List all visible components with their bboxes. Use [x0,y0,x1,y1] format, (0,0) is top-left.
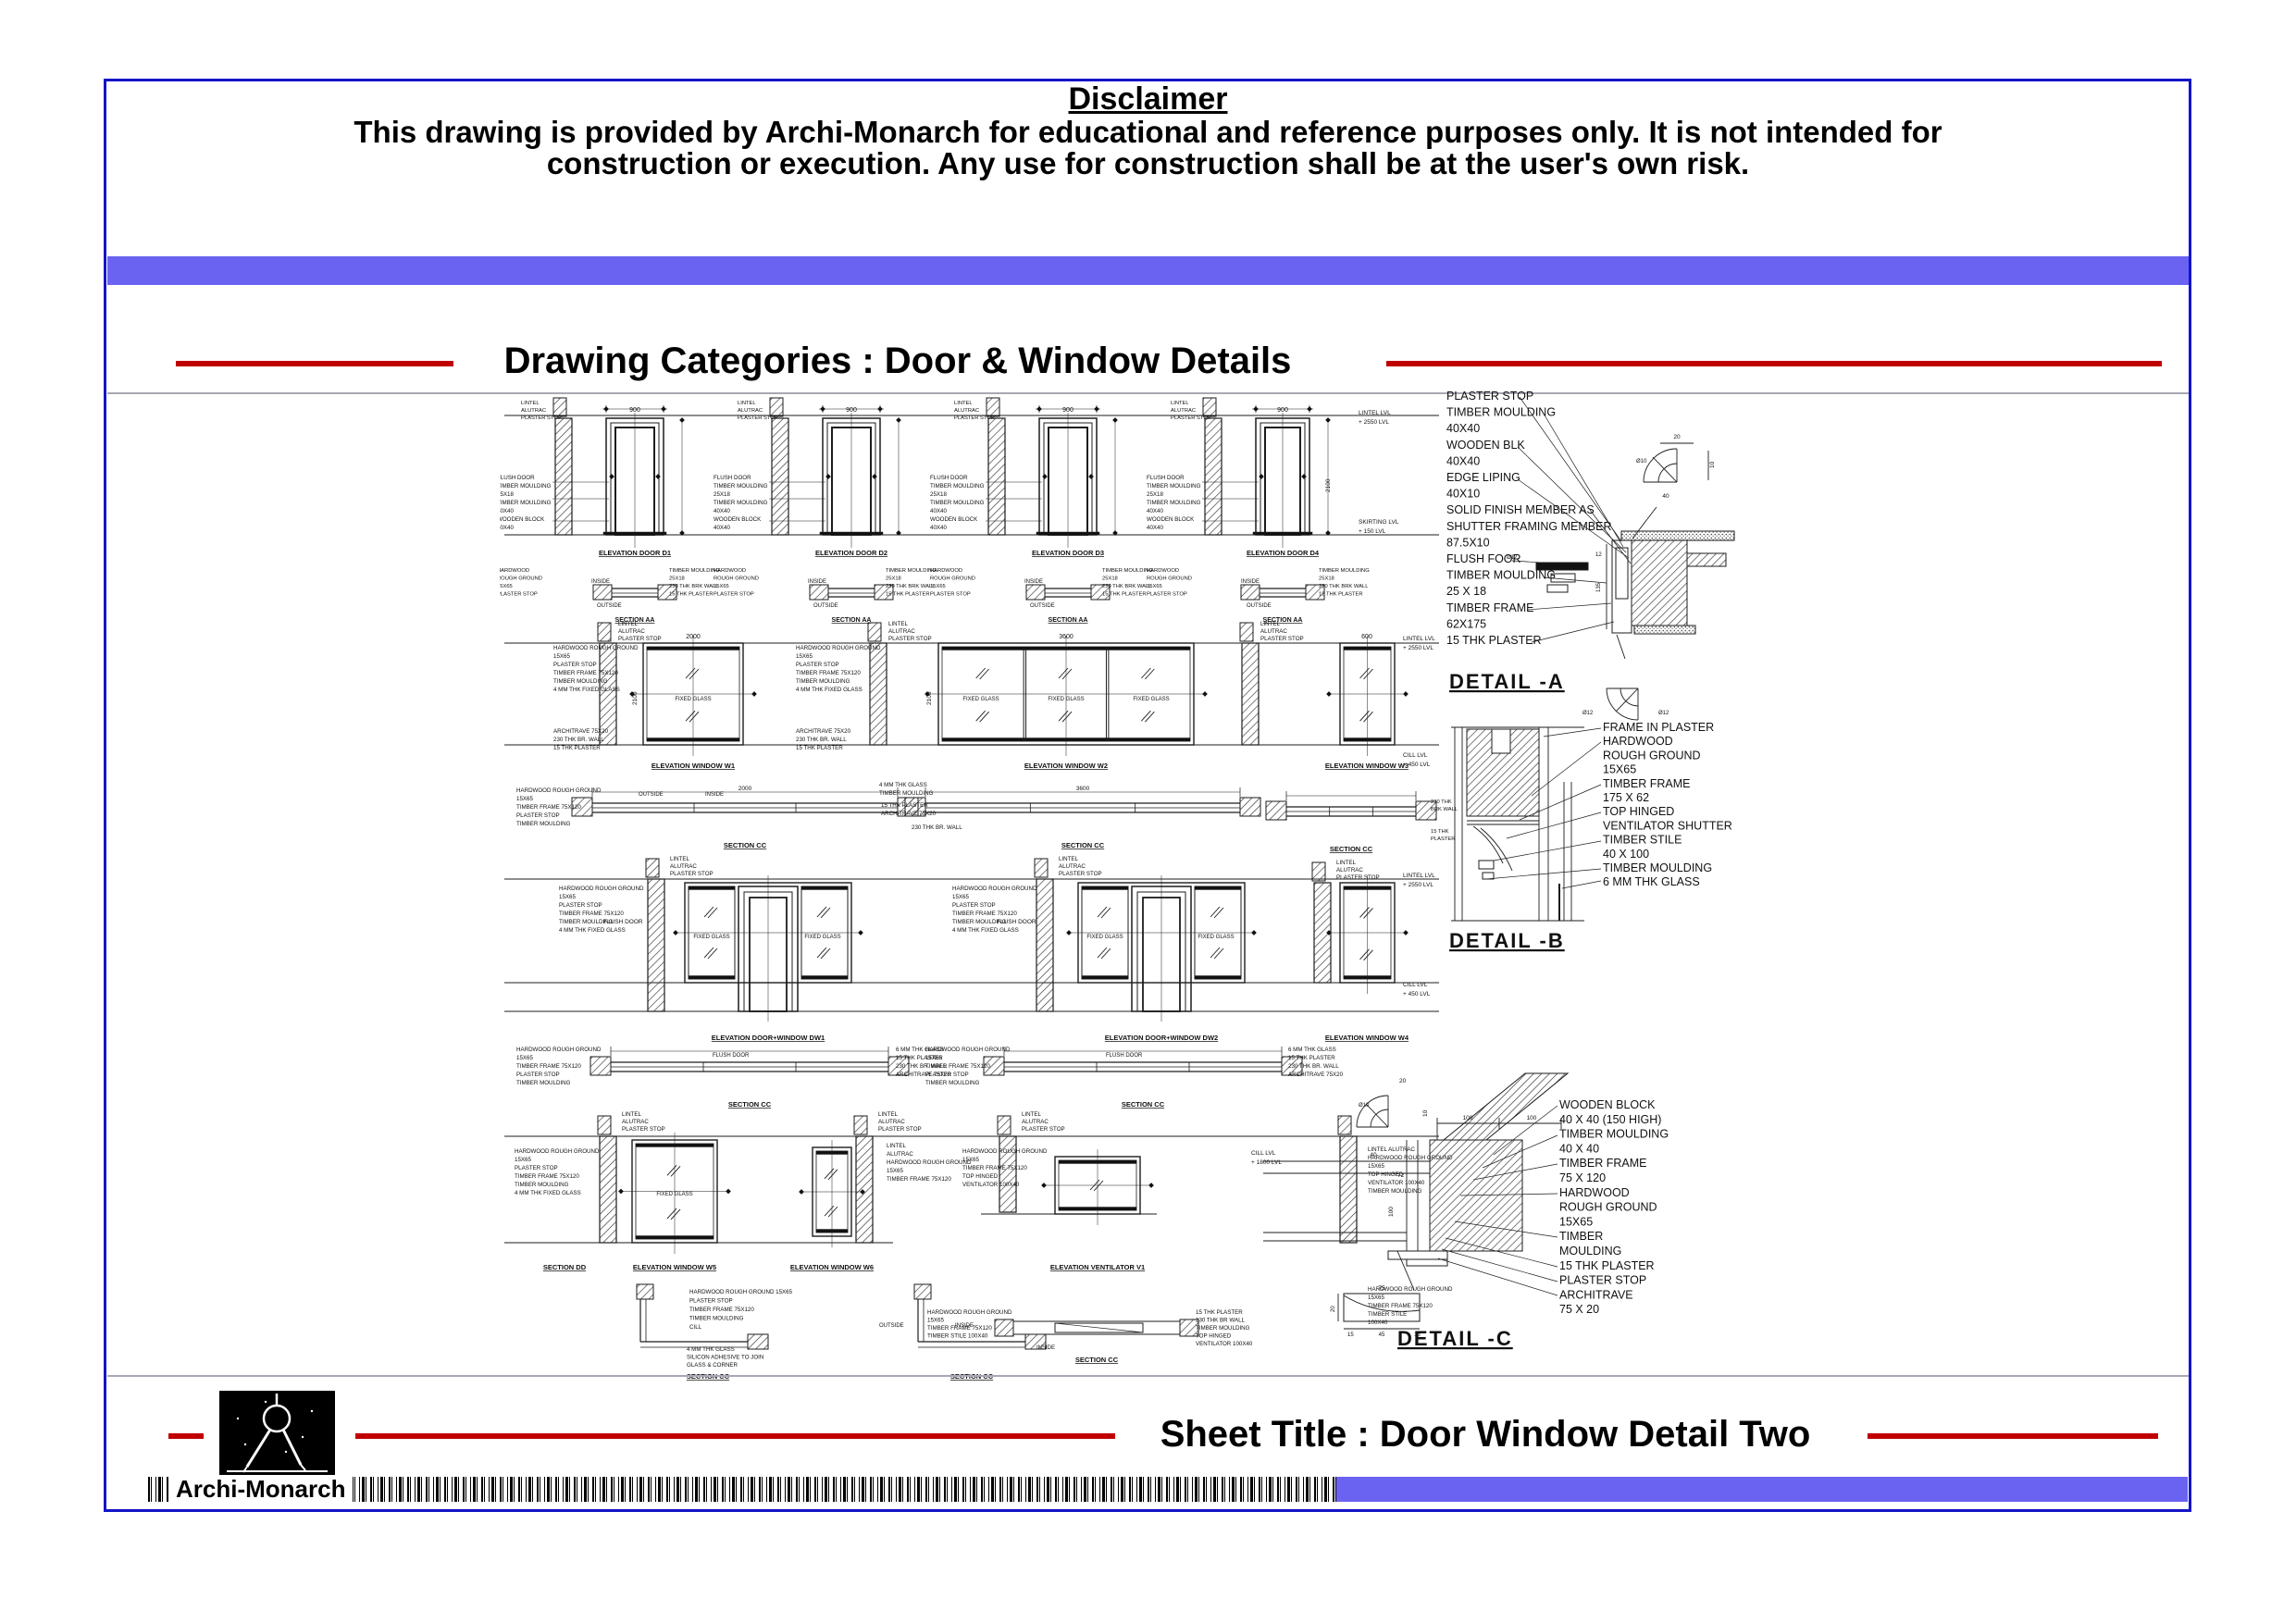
svg-text:SKIRTING LVL: SKIRTING LVL [1359,519,1399,526]
svg-text:OUTSIDE: OUTSIDE [1030,603,1055,609]
svg-text:ALUTRAC: ALUTRAC [622,1119,649,1125]
svg-text:ELEVATION WINDOW W6: ELEVATION WINDOW W6 [790,1263,874,1271]
svg-text:15X65: 15X65 [516,1055,533,1061]
svg-text:25X18: 25X18 [500,491,514,498]
svg-text:LINTEL LVL: LINTEL LVL [1359,410,1391,416]
svg-text:VENTILATOR SHUTTER: VENTILATOR SHUTTER [1603,819,1732,832]
svg-text:TIMBER MOULDING: TIMBER MOULDING [930,483,985,489]
svg-text:40X40: 40X40 [930,525,947,531]
svg-text:+ 2550 LVL: + 2550 LVL [1359,419,1389,426]
svg-text:LINTEL: LINTEL [670,856,690,862]
svg-text:TIMBER FRAME 75X120: TIMBER FRAME 75X120 [516,804,581,811]
svg-text:TIMBER MOULDING: TIMBER MOULDING [1147,500,1201,506]
svg-text:HARDWOOD: HARDWOOD [1603,735,1673,748]
svg-text:15X65: 15X65 [1603,763,1636,776]
svg-text:75 X 20: 75 X 20 [1559,1303,1599,1316]
svg-text:ALUTRAC: ALUTRAC [1260,628,1287,635]
svg-text:25X18: 25X18 [930,491,947,498]
svg-text:40 X 100: 40 X 100 [1603,848,1649,861]
svg-text:4 MM THK FIXED GLASS: 4 MM THK FIXED GLASS [796,687,863,693]
svg-text:LINTEL: LINTEL [618,621,639,627]
svg-text:FLUSH DOOR: FLUSH DOOR [713,1053,750,1059]
svg-text:SHUTTER FRAMING MEMBER: SHUTTER FRAMING MEMBER [1446,520,1611,533]
svg-text:TIMBER STILE 100X40: TIMBER STILE 100X40 [927,1333,988,1340]
svg-text:HARDWOOD ROUGH GROUND: HARDWOOD ROUGH GROUND [516,787,602,794]
svg-text:DETAIL -A: DETAIL -A [1449,670,1565,693]
svg-text:PLASTER STOP: PLASTER STOP [1260,636,1304,642]
svg-text:ROUGH GROUND: ROUGH GROUND [930,576,975,582]
svg-text:TIMBER MOULDING: TIMBER MOULDING [1102,568,1153,574]
svg-text:TIMBER MOULDING: TIMBER MOULDING [1603,861,1712,874]
svg-text:100: 100 [1388,1207,1395,1217]
svg-text:PLASTER STOP: PLASTER STOP [1171,415,1211,421]
svg-text:PLASTER STOP: PLASTER STOP [925,1072,969,1078]
svg-text:LINTEL: LINTEL [1260,621,1281,627]
svg-text:CILL LVL: CILL LVL [1403,752,1428,759]
svg-text:HARDWOOD ROUGH GROUND: HARDWOOD ROUGH GROUND [925,1047,1011,1053]
svg-text:15X65: 15X65 [553,653,570,660]
svg-text:15X65: 15X65 [515,1157,531,1163]
svg-text:WOODEN BLOCK: WOODEN BLOCK [714,516,762,523]
drawing-sheet-page: Disclaimer This drawing is provided by A… [0,0,2296,1623]
svg-text:MOULDING: MOULDING [1559,1245,1621,1258]
svg-text:FLUSH DOOR: FLUSH DOOR [1147,475,1185,481]
svg-text:TIMBER MOULDING: TIMBER MOULDING [1559,1128,1669,1141]
svg-text:LINTEL: LINTEL [622,1111,642,1118]
svg-text:FIXED GLASS: FIXED GLASS [1133,697,1169,702]
svg-text:40 X 40 (150 HIGH): 40 X 40 (150 HIGH) [1559,1113,1661,1126]
svg-text:600: 600 [1361,634,1372,640]
svg-text:15X65: 15X65 [930,584,946,589]
svg-text:2000: 2000 [686,634,701,640]
svg-text:TIMBER STILE: TIMBER STILE [1368,1311,1407,1318]
svg-text:FLUSH DOOR: FLUSH DOOR [714,475,751,481]
svg-text:LINTEL: LINTEL [738,401,756,406]
disclaimer-line-2: construction or execution. Any use for c… [0,146,2296,181]
svg-text:2100: 2100 [1325,478,1332,492]
svg-text:+ 450 LVL: + 450 LVL [1403,762,1431,768]
svg-text:VENTILATOR 100X40: VENTILATOR 100X40 [1368,1180,1425,1186]
svg-text:SILICON ADHESIVE TO JOIN: SILICON ADHESIVE TO JOIN [687,1355,763,1361]
svg-text:25X18: 25X18 [1147,491,1163,498]
svg-text:25X18: 25X18 [1102,576,1118,582]
svg-text:HARDWOOD ROUGH GROUND: HARDWOOD ROUGH GROUND [553,645,639,651]
svg-text:230 THK BR. WALL: 230 THK BR. WALL [1288,1063,1339,1070]
svg-text:TIMBER MOULDING: TIMBER MOULDING [689,1316,744,1322]
svg-text:175 X 62: 175 X 62 [1603,791,1649,804]
svg-text:40X10: 40X10 [1446,488,1480,501]
svg-text:FIXED GLASS: FIXED GLASS [1086,935,1123,940]
svg-text:TIMBER MOULDING: TIMBER MOULDING [1319,568,1370,574]
svg-text:900: 900 [846,407,857,414]
svg-text:PLASTER STOP: PLASTER STOP [670,871,714,877]
svg-text:ROUGH GROUND: ROUGH GROUND [1147,576,1192,582]
svg-text:HARDWOOD ROUGH GROUND: HARDWOOD ROUGH GROUND [887,1159,972,1166]
svg-text:OUTSIDE: OUTSIDE [1247,603,1272,609]
svg-text:45: 45 [1379,1332,1385,1338]
svg-text:TIMBER FRAME: TIMBER FRAME [1446,601,1533,614]
svg-text:ALUTRAC: ALUTRAC [1022,1119,1049,1125]
svg-text:900: 900 [629,407,640,414]
svg-text:230 THK BR. WALL: 230 THK BR. WALL [796,737,847,743]
svg-text:OUTSIDE: OUTSIDE [639,792,664,798]
svg-text:2100: 2100 [926,691,933,705]
svg-text:ALUTRAC: ALUTRAC [618,628,645,635]
svg-text:TIMBER MOULDING: TIMBER MOULDING [1196,1325,1250,1332]
svg-text:FLUSH DOOR: FLUSH DOOR [930,475,968,481]
svg-text:TIMBER MOULDING: TIMBER MOULDING [879,790,934,797]
svg-text:4 MM THK FIXED GLASS: 4 MM THK FIXED GLASS [553,687,620,693]
svg-text:15 THK PLASTER: 15 THK PLASTER [1288,1055,1335,1061]
svg-text:FIXED GLASS: FIXED GLASS [1198,935,1234,940]
svg-text:75 X 120: 75 X 120 [1559,1171,1606,1184]
svg-text:TIMBER MOULDING: TIMBER MOULDING [553,678,608,685]
svg-text:PLASTER STOP: PLASTER STOP [878,1126,922,1133]
svg-text:15 THK PLASTER: 15 THK PLASTER [1196,1309,1243,1316]
svg-text:ALUTRAC: ALUTRAC [521,408,546,414]
svg-text:15 THK PLASTER: 15 THK PLASTER [553,745,601,751]
svg-text:VENTILATOR 100X40: VENTILATOR 100X40 [1196,1341,1253,1347]
svg-text:SECTION CC: SECTION CC [728,1100,772,1109]
svg-text:6 MM THK GLASS: 6 MM THK GLASS [1288,1047,1336,1053]
svg-text:15X65: 15X65 [500,584,513,589]
svg-text:PLASTER STOP: PLASTER STOP [1022,1126,1065,1133]
compass-logo-icon [219,1391,335,1476]
svg-text:15 THK PLASTER: 15 THK PLASTER [1319,592,1363,598]
svg-text:TIMBER MOULDING: TIMBER MOULDING [1147,483,1201,489]
svg-text:TOP HINGED: TOP HINGED [1603,805,1674,818]
svg-text:LINTEL: LINTEL [878,1111,899,1118]
svg-text:ELEVATION DOOR D1: ELEVATION DOOR D1 [599,549,671,557]
svg-text:LINTEL: LINTEL [887,1143,907,1149]
svg-text:Ø10: Ø10 [1636,459,1647,465]
svg-text:900: 900 [1062,407,1074,414]
svg-text:TIMBER FRAME 75X120: TIMBER FRAME 75X120 [553,670,618,676]
svg-text:PLASTER STOP: PLASTER STOP [1059,871,1102,877]
svg-text:PLASTER STOP: PLASTER STOP [516,1072,560,1078]
svg-text:40X40: 40X40 [1147,525,1163,531]
svg-text:TIMBER MOULDING: TIMBER MOULDING [516,1080,571,1086]
svg-text:FRAME IN PLASTER: FRAME IN PLASTER [1603,721,1714,734]
svg-text:100X40: 100X40 [1368,1319,1388,1326]
svg-text:40X40: 40X40 [714,525,730,531]
svg-text:15X65: 15X65 [1368,1163,1384,1170]
svg-text:Ø12: Ø12 [1658,711,1669,716]
svg-text:ARCHITRAVE: ARCHITRAVE [1559,1288,1633,1301]
svg-text:HARDWOOD ROUGH GROUND: HARDWOOD ROUGH GROUND [796,645,881,651]
svg-text:INSIDE: INSIDE [808,579,826,585]
svg-text:TIMBER MOULDING: TIMBER MOULDING [500,483,552,489]
svg-text:PLASTER STOP: PLASTER STOP [622,1126,665,1133]
svg-text:15X65: 15X65 [927,1318,944,1324]
svg-text:ROUGH GROUND: ROUGH GROUND [714,576,759,582]
svg-text:PLASTER STOP: PLASTER STOP [954,415,995,421]
svg-text:ALUTRAC: ALUTRAC [1336,867,1363,873]
svg-text:LINTEL: LINTEL [888,621,909,627]
svg-text:PLASTER STOP: PLASTER STOP [516,812,560,819]
svg-text:TOP HINGED: TOP HINGED [962,1173,999,1180]
svg-text:62X175: 62X175 [1446,617,1486,630]
sheet-rule-right [1868,1433,2158,1439]
svg-text:FIXED GLASS: FIXED GLASS [1048,697,1084,702]
svg-text:HARDWOOD ROUGH GROUND: HARDWOOD ROUGH GROUND [927,1309,1012,1316]
svg-text:+ 450 LVL: + 450 LVL [1403,991,1431,997]
svg-text:INSIDE: INSIDE [955,1323,974,1329]
svg-text:HARDWOOD ROUGH GROUND: HARDWOOD ROUGH GROUND [516,1047,602,1053]
svg-text:FIXED GLASS: FIXED GLASS [656,1192,692,1197]
svg-text:15 THK PLASTER: 15 THK PLASTER [881,802,928,809]
svg-text:TIMBER MOULDING: TIMBER MOULDING [500,500,552,506]
svg-text:HARDWOOD ROUGH GROUND 15X65: HARDWOOD ROUGH GROUND 15X65 [689,1289,793,1295]
svg-text:4 MM THK GLASS: 4 MM THK GLASS [879,782,927,788]
svg-text:LINTEL: LINTEL [1171,401,1189,406]
svg-text:PLASTER STOP: PLASTER STOP [1336,874,1380,881]
svg-text:PLASTER STOP: PLASTER STOP [521,415,562,421]
svg-text:ALUTRAC: ALUTRAC [670,863,697,870]
svg-text:15 THK: 15 THK [1431,829,1449,835]
svg-text:FLUSH DOOR: FLUSH DOOR [500,475,535,481]
svg-text:TIMBER MOULDING: TIMBER MOULDING [714,483,768,489]
svg-text:OUTSIDE: OUTSIDE [879,1323,904,1329]
svg-text:4 MM THK FIXED GLASS: 4 MM THK FIXED GLASS [515,1190,581,1196]
svg-text:ELEVATION WINDOW W4: ELEVATION WINDOW W4 [1325,1034,1409,1042]
svg-text:10: 10 [1709,461,1716,468]
svg-text:PLASTER STOP: PLASTER STOP [553,662,597,668]
svg-text:TIMBER MOULDING: TIMBER MOULDING [515,1182,569,1188]
svg-text:15X65: 15X65 [1368,1295,1384,1301]
svg-text:HARDWOOD ROUGH GROUND: HARDWOOD ROUGH GROUND [962,1148,1048,1155]
sheet-rule-dash [168,1433,204,1439]
svg-text:ELEVATION WINDOW W3: ELEVATION WINDOW W3 [1325,762,1409,770]
svg-text:100: 100 [1527,1115,1537,1121]
svg-text:SECTION DD: SECTION DD [543,1263,587,1271]
svg-text:4 MM THK FIXED GLASS: 4 MM THK FIXED GLASS [559,927,626,934]
svg-text:12: 12 [1595,552,1602,558]
svg-text:ALUTRAC: ALUTRAC [887,1151,913,1158]
svg-text:TIMBER FRAME 75X120: TIMBER FRAME 75X120 [887,1176,951,1183]
svg-text:40X40: 40X40 [500,525,514,531]
svg-text:25X18: 25X18 [714,491,730,498]
svg-text:HARDWOOD ROUGH GROUND: HARDWOOD ROUGH GROUND [515,1148,600,1155]
svg-text:OUTSIDE: OUTSIDE [597,603,622,609]
svg-text:20: 20 [1399,1078,1407,1084]
svg-text:40: 40 [1370,1152,1377,1158]
svg-text:INSIDE: INSIDE [1036,1345,1055,1351]
svg-text:TIMBER MOULDING: TIMBER MOULDING [669,568,720,574]
svg-text:ROUGH GROUND: ROUGH GROUND [500,576,542,582]
svg-text:PLASTER: PLASTER [1431,836,1455,842]
svg-text:PLASTER STOP: PLASTER STOP [515,1165,558,1171]
svg-text:TIMBER STILE: TIMBER STILE [1603,834,1682,847]
category-title: Drawing Categories : Door & Window Detai… [453,341,1342,382]
svg-text:ARCHITRAVE 75X20: ARCHITRAVE 75X20 [881,811,937,817]
svg-text:WOODEN BLOCK: WOODEN BLOCK [500,516,545,523]
svg-text:25X18: 25X18 [886,576,901,582]
svg-text:TIMBER FRAME: TIMBER FRAME [1603,777,1690,790]
svg-text:4 MM THK GLASS: 4 MM THK GLASS [687,1346,735,1353]
svg-text:LINTEL: LINTEL [1059,856,1079,862]
svg-text:TIMBER FRAME 75X120: TIMBER FRAME 75X120 [962,1165,1027,1171]
svg-text:15X65: 15X65 [559,894,576,900]
svg-text:15X65: 15X65 [925,1055,942,1061]
disclaimer-heading-text: Disclaimer [1069,81,1228,117]
svg-text:TIMBER MOULDING: TIMBER MOULDING [796,678,850,685]
svg-text:2000: 2000 [738,786,752,792]
svg-text:HARDWOOD ROUGH GROUND: HARDWOOD ROUGH GROUND [952,886,1037,892]
svg-text:20: 20 [1673,434,1681,440]
svg-text:ELEVATION DOOR D2: ELEVATION DOOR D2 [815,549,887,557]
disclaimer-heading: Disclaimer [0,81,2296,118]
svg-text:15X65: 15X65 [516,796,533,802]
archi-monarch-logo [219,1391,335,1476]
svg-text:FIXED GLASS: FIXED GLASS [693,935,729,940]
svg-text:TIMBER MOULDING: TIMBER MOULDING [886,568,937,574]
svg-text:15 THK PLASTER: 15 THK PLASTER [796,745,843,751]
svg-text:15: 15 [1347,1332,1354,1338]
svg-text:ALUTRAC: ALUTRAC [878,1119,905,1125]
svg-text:ROUGH GROUND: ROUGH GROUND [1603,749,1701,762]
svg-text:LINTEL: LINTEL [1336,860,1357,866]
svg-text:ROUGH GROUND: ROUGH GROUND [1559,1201,1657,1214]
svg-text:HARDWOOD: HARDWOOD [930,568,962,574]
svg-text:25 X 18: 25 X 18 [1446,585,1486,598]
svg-text:+ 2550 LVL: + 2550 LVL [1403,882,1433,888]
svg-text:ARCHITRAVE 75X20: ARCHITRAVE 75X20 [553,728,609,735]
svg-text:ELEVATION WINDOW W1: ELEVATION WINDOW W1 [652,762,735,770]
svg-text:TIMBER MOULDING: TIMBER MOULDING [714,500,768,506]
svg-text:LINTEL: LINTEL [521,401,540,406]
svg-text:ALUTRAC: ALUTRAC [888,628,915,635]
svg-text:TIMBER MOULDING: TIMBER MOULDING [1446,406,1556,419]
svg-text:15X65: 15X65 [952,894,969,900]
svg-text:WOODEN BLK: WOODEN BLK [1446,439,1525,452]
divider-bottom [107,1375,2189,1377]
svg-text:PLASTER STOP: PLASTER STOP [888,636,932,642]
svg-text:900: 900 [1277,407,1288,414]
svg-text:CILL LVL: CILL LVL [1403,982,1428,988]
svg-text:TIMBER FRAME 75X120: TIMBER FRAME 75X120 [515,1173,579,1180]
svg-text:HARDWOOD: HARDWOOD [500,568,529,574]
svg-text:WOODEN BLOCK: WOODEN BLOCK [1559,1098,1656,1111]
svg-text:FIXED GLASS: FIXED GLASS [675,697,711,702]
svg-text:+ 2550 LVL: + 2550 LVL [1403,645,1433,651]
svg-text:40: 40 [1662,493,1669,500]
svg-text:CILL: CILL [689,1324,702,1331]
svg-text:TIMBER FRAME 75X120: TIMBER FRAME 75X120 [516,1063,581,1070]
svg-text:15X65: 15X65 [962,1157,979,1163]
svg-text:230 THK: 230 THK [1431,799,1452,805]
svg-text:PLASTER STOP: PLASTER STOP [796,662,839,668]
svg-text:25X18: 25X18 [1319,576,1334,582]
svg-text:CILL LVL: CILL LVL [1251,1150,1276,1157]
svg-text:LINTEL LVL: LINTEL LVL [1403,636,1435,642]
svg-text:SECTION CC: SECTION CC [1075,1356,1119,1364]
svg-text:15X65: 15X65 [796,653,813,660]
svg-text:ELEVATION DOOR+WINDOW DW1: ELEVATION DOOR+WINDOW DW1 [712,1034,825,1042]
svg-text:ELEVATION VENTILATOR V1: ELEVATION VENTILATOR V1 [1050,1263,1145,1271]
svg-text:FIXED GLASS: FIXED GLASS [804,935,840,940]
svg-text:40X40: 40X40 [714,508,730,514]
svg-text:15X65: 15X65 [1147,584,1162,589]
svg-text:TIMBER FRAME: TIMBER FRAME [1559,1157,1646,1170]
svg-text:ALUTRAC: ALUTRAC [1171,408,1196,414]
svg-text:HARDWOOD: HARDWOOD [1147,568,1179,574]
svg-text:TIMBER FRAME 75X120: TIMBER FRAME 75X120 [1368,1303,1433,1309]
svg-text:VENTILATOR 100X40: VENTILATOR 100X40 [962,1182,1020,1188]
sheet-rule-left [355,1433,1115,1439]
category-rule-left [176,361,453,366]
svg-text:TIMBER MOULDING: TIMBER MOULDING [925,1080,980,1086]
svg-text:LINTEL: LINTEL [1022,1111,1042,1118]
svg-text:40X40: 40X40 [500,508,514,514]
svg-text:40X40: 40X40 [1147,508,1163,514]
svg-text:FLUSH FOOR: FLUSH FOOR [1446,552,1521,565]
svg-text:SECTION CC: SECTION CC [1061,841,1105,849]
svg-text:DETAIL -B: DETAIL -B [1449,929,1565,952]
svg-text:FLUSH DOOR: FLUSH DOOR [603,919,643,925]
svg-text:LINTEL LVL: LINTEL LVL [1403,873,1435,879]
cad-drawing-canvas: 900ELEVATION DOOR D1SECTION AAFLUSH DOOR… [500,384,1971,1388]
svg-text:87.5X10: 87.5X10 [1446,536,1490,549]
svg-text:230 THK BR. WALL: 230 THK BR. WALL [553,737,604,743]
svg-text:SECTION AA: SECTION AA [832,617,872,624]
svg-text:4 MM THK FIXED GLASS: 4 MM THK FIXED GLASS [952,927,1019,934]
svg-text:SOLID FINISH MEMBER AS: SOLID FINISH MEMBER AS [1446,503,1595,516]
svg-text:40 X 40: 40 X 40 [1559,1142,1599,1155]
svg-text:TIMBER: TIMBER [1559,1230,1603,1243]
svg-text:TIMBER FRAME 75X120: TIMBER FRAME 75X120 [796,670,861,676]
svg-text:PLASTER STOP: PLASTER STOP [500,592,538,598]
svg-text:INSIDE: INSIDE [705,792,724,798]
svg-text:PLASTER STOP: PLASTER STOP [1147,592,1187,598]
brand-label: Archi-Monarch [168,1475,353,1503]
svg-text:PLASTER STOP: PLASTER STOP [1559,1274,1646,1287]
svg-text:135: 135 [1596,582,1602,592]
svg-text:PLASTER STOP: PLASTER STOP [714,592,754,598]
svg-text:FLUSH DOOR: FLUSH DOOR [997,919,1036,925]
svg-text:3600: 3600 [1059,634,1074,640]
svg-text:40X40: 40X40 [1446,422,1480,435]
svg-text:SECTION CC: SECTION CC [1122,1100,1165,1109]
svg-text:TIMBER MOULDING: TIMBER MOULDING [1446,569,1556,582]
svg-text:ELEVATION WINDOW W2: ELEVATION WINDOW W2 [1024,762,1108,770]
svg-text:SECTION AA: SECTION AA [1049,617,1088,624]
svg-text:15X65: 15X65 [714,584,729,589]
svg-text:40X40: 40X40 [1446,454,1480,467]
svg-text:ELEVATION DOOR D3: ELEVATION DOOR D3 [1032,549,1104,557]
svg-text:+ 150 LVL: + 150 LVL [1359,528,1386,535]
svg-text:TOP HINGED: TOP HINGED [1196,1333,1232,1340]
svg-text:INSIDE: INSIDE [1024,579,1043,585]
svg-text:ALUTRAC: ALUTRAC [954,408,979,414]
svg-text:INSIDE: INSIDE [591,579,610,585]
svg-text:TIMBER FRAME 75X120: TIMBER FRAME 75X120 [689,1307,754,1313]
svg-text:ELEVATION WINDOW W5: ELEVATION WINDOW W5 [633,1263,716,1271]
svg-text:ALUTRAC: ALUTRAC [738,408,763,414]
svg-text:PLASTER STOP: PLASTER STOP [1446,390,1533,403]
svg-text:25X18: 25X18 [669,576,685,582]
svg-text:GLASS & CORNER: GLASS & CORNER [687,1362,738,1369]
svg-text:SECTION CC: SECTION CC [724,841,767,849]
accent-bar-bottom [1336,1477,2188,1502]
category-rule-right [1386,361,2162,366]
svg-text:ARCHITRAVE 75X20: ARCHITRAVE 75X20 [1288,1072,1344,1078]
svg-text:Ø12: Ø12 [1582,711,1594,716]
svg-text:HARDWOOD: HARDWOOD [1559,1186,1630,1199]
svg-text:ARCHITRAVE 75X20: ARCHITRAVE 75X20 [796,728,851,735]
svg-text:ELEVATION DOOR+WINDOW DW2: ELEVATION DOOR+WINDOW DW2 [1105,1034,1218,1042]
svg-text:230 THK BR WALL: 230 THK BR WALL [1196,1318,1246,1324]
